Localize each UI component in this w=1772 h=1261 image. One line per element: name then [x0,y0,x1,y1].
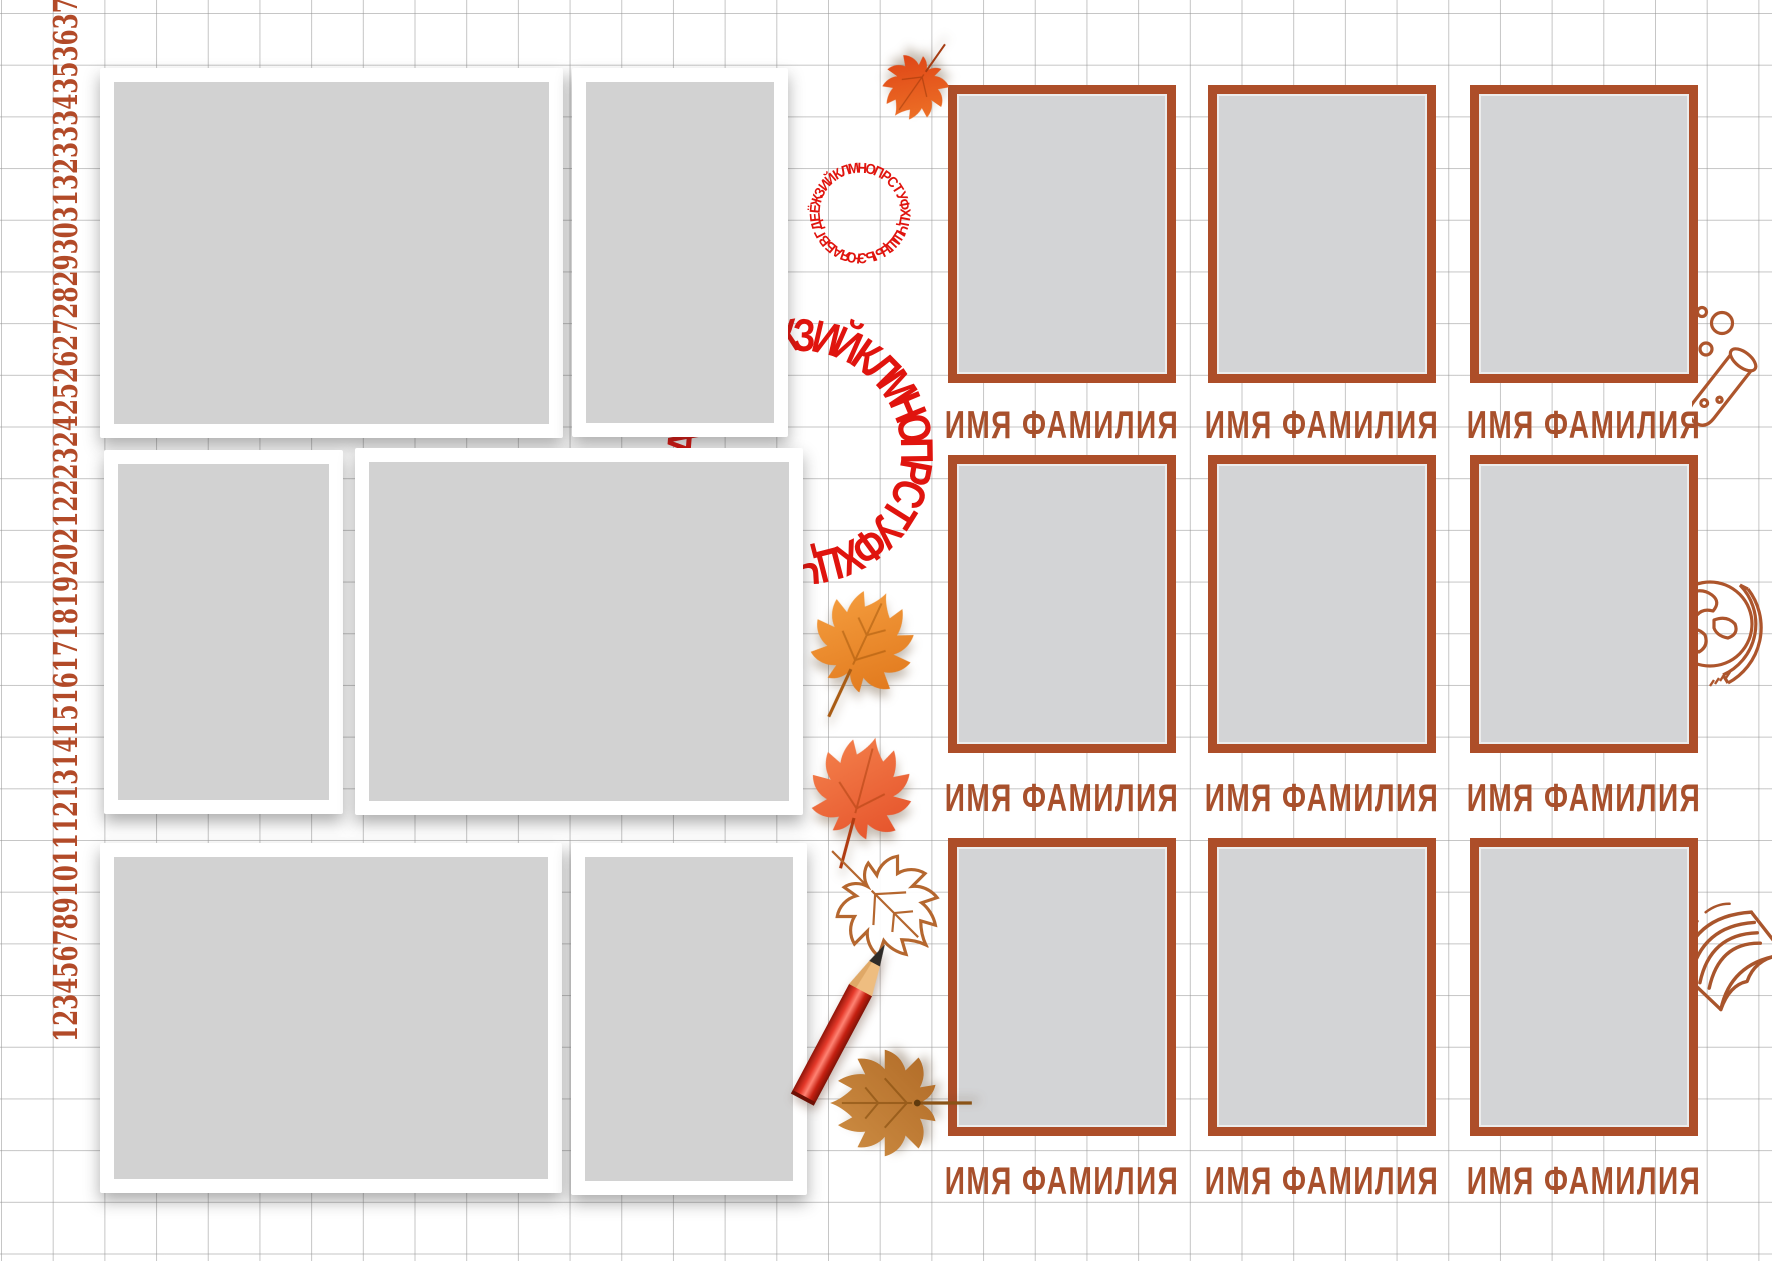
portrait-frame[interactable] [948,838,1176,1136]
portrait-frame[interactable] [1470,85,1698,383]
photo-card[interactable] [571,843,807,1195]
photo-card[interactable] [104,450,343,814]
photo-placeholder[interactable] [369,462,789,801]
photo-card[interactable] [100,843,562,1193]
student-name-label[interactable]: ИМЯ ФАМИЛИЯ [1205,406,1440,446]
number-ruler-text: 1234567891011121314151617181920212223242… [44,0,88,1042]
student-name-label[interactable]: ИМЯ ФАМИЛИЯ [945,1162,1180,1202]
portrait-frame[interactable] [1470,455,1698,753]
portrait-frame[interactable] [1208,838,1436,1136]
photo-placeholder[interactable] [585,857,793,1181]
portrait-frame[interactable] [1470,838,1698,1136]
photo-placeholder[interactable] [114,82,549,424]
photo-placeholder[interactable] [586,82,774,423]
portrait-frame[interactable] [1208,455,1436,753]
student-name-label[interactable]: ИМЯ ФАМИЛИЯ [1205,1162,1440,1202]
page: { "ruler": { "numbers": "123456789101112… [0,0,1772,1261]
student-name-label[interactable]: ИМЯ ФАМИЛИЯ [1467,1162,1702,1202]
number-ruler: 1234567891011121314151617181920212223242… [44,92,88,1042]
test-tube-doodle-icon [1692,292,1772,464]
maple-leaf-brown-icon [824,1038,978,1168]
student-name-label[interactable]: ИМЯ ФАМИЛИЯ [945,406,1180,446]
student-name-label[interactable]: ИМЯ ФАМИЛИЯ [1467,779,1702,819]
photo-card[interactable] [355,448,803,815]
student-name-label[interactable]: ИМЯ ФАМИЛИЯ [1467,406,1702,446]
portrait-frame[interactable] [948,455,1176,753]
photo-placeholder[interactable] [118,464,329,800]
portrait-frame[interactable] [1208,85,1436,383]
photo-card[interactable] [100,68,563,438]
photo-placeholder[interactable] [114,857,548,1179]
portrait-frame[interactable] [948,85,1176,383]
student-name-label[interactable]: ИМЯ ФАМИЛИЯ [945,779,1180,819]
student-name-label[interactable]: ИМЯ ФАМИЛИЯ [1205,779,1440,819]
photo-card[interactable] [572,68,788,437]
